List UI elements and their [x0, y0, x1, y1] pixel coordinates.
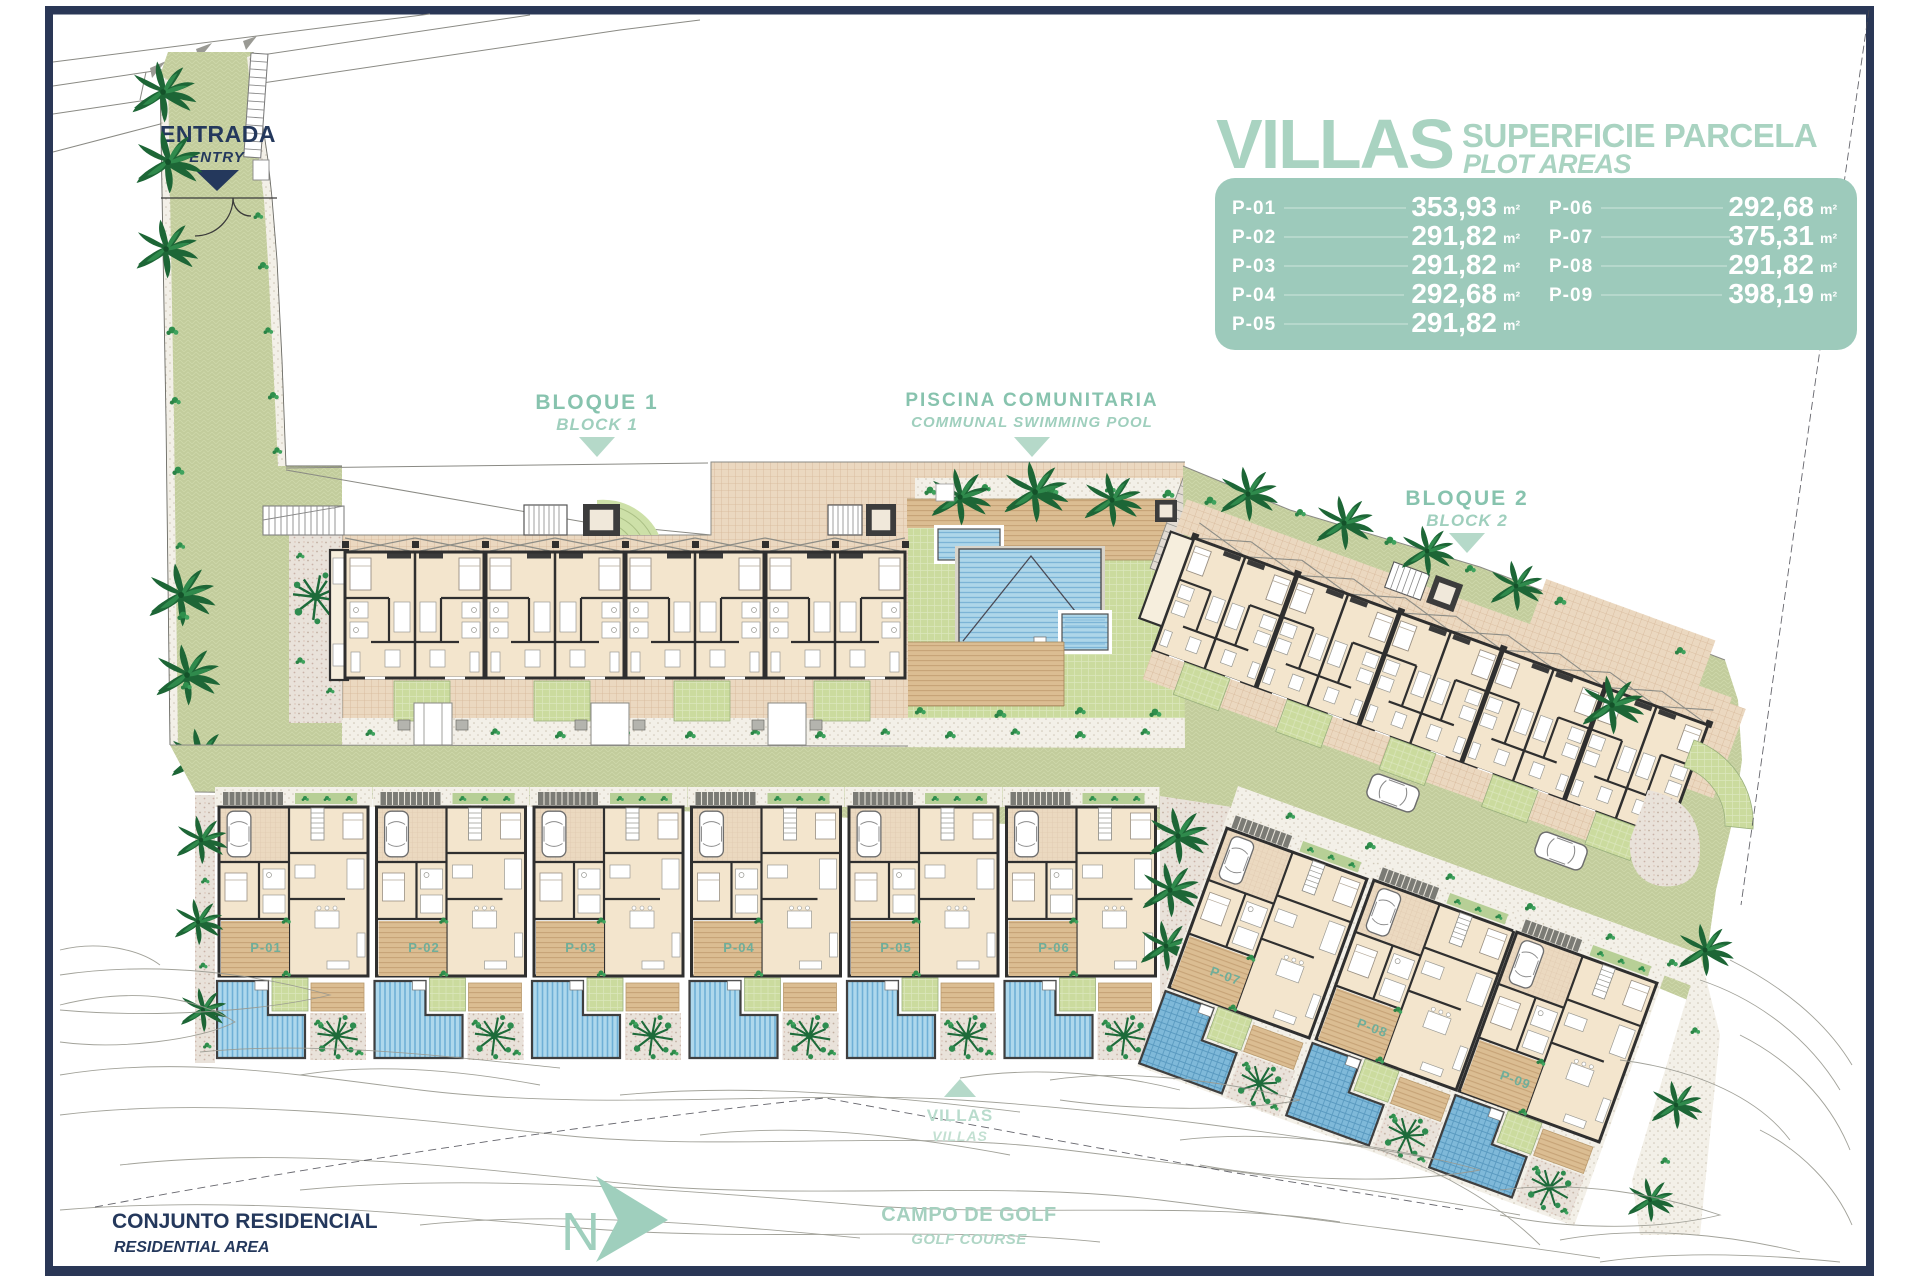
- svg-text:P-06: P-06: [1038, 940, 1069, 955]
- svg-text:BLOQUE 1: BLOQUE 1: [535, 391, 658, 414]
- svg-text:ENTRY: ENTRY: [189, 149, 246, 166]
- svg-text:N: N: [561, 1202, 600, 1262]
- svg-text:BLOQUE 2: BLOQUE 2: [1405, 487, 1528, 510]
- svg-text:m²: m²: [1820, 259, 1837, 275]
- svg-text:P-07: P-07: [1549, 227, 1593, 248]
- svg-text:VILLAS: VILLAS: [927, 1106, 993, 1125]
- svg-text:P-03: P-03: [1232, 256, 1276, 277]
- svg-text:398,19: 398,19: [1728, 278, 1814, 309]
- svg-text:BLOCK 1: BLOCK 1: [556, 415, 638, 434]
- svg-text:m²: m²: [1820, 288, 1837, 304]
- svg-text:375,31: 375,31: [1728, 220, 1814, 251]
- svg-text:m²: m²: [1503, 201, 1520, 217]
- svg-text:m²: m²: [1503, 317, 1520, 333]
- svg-text:P-09: P-09: [1549, 285, 1593, 306]
- svg-text:P-04: P-04: [723, 940, 754, 955]
- svg-text:ENTRADA: ENTRADA: [160, 121, 276, 147]
- svg-text:P-03: P-03: [565, 940, 596, 955]
- svg-text:291,82: 291,82: [1728, 249, 1814, 280]
- svg-text:CONJUNTO RESIDENCIAL: CONJUNTO RESIDENCIAL: [112, 1210, 378, 1233]
- svg-text:PISCINA COMUNITARIA: PISCINA COMUNITARIA: [905, 390, 1158, 411]
- svg-text:VILLAS: VILLAS: [1216, 105, 1453, 183]
- svg-text:CAMPO DE GOLF: CAMPO DE GOLF: [881, 1204, 1056, 1226]
- svg-text:291,82: 291,82: [1411, 249, 1497, 280]
- svg-text:m²: m²: [1503, 259, 1520, 275]
- svg-text:P-01: P-01: [250, 940, 281, 955]
- svg-text:P-01: P-01: [1232, 198, 1276, 219]
- svg-text:P-02: P-02: [1232, 227, 1276, 248]
- svg-text:291,82: 291,82: [1411, 307, 1497, 338]
- svg-text:353,93: 353,93: [1411, 191, 1497, 222]
- svg-text:P-04: P-04: [1232, 285, 1276, 306]
- svg-text:GOLF COURSE: GOLF COURSE: [911, 1231, 1027, 1248]
- svg-text:P-05: P-05: [1232, 314, 1276, 335]
- svg-text:PLOT AREAS: PLOT AREAS: [1463, 149, 1631, 179]
- svg-text:VILLAS: VILLAS: [932, 1128, 988, 1144]
- svg-text:P-05: P-05: [880, 940, 911, 955]
- svg-text:292,68: 292,68: [1728, 191, 1814, 222]
- svg-text:m²: m²: [1820, 230, 1837, 246]
- svg-text:COMMUNAL SWIMMING POOL: COMMUNAL SWIMMING POOL: [911, 414, 1153, 431]
- svg-text:291,82: 291,82: [1411, 220, 1497, 251]
- svg-text:BLOCK 2: BLOCK 2: [1426, 511, 1508, 530]
- svg-text:m²: m²: [1503, 288, 1520, 304]
- svg-text:292,68: 292,68: [1411, 278, 1497, 309]
- svg-text:P-08: P-08: [1549, 256, 1593, 277]
- svg-text:m²: m²: [1820, 201, 1837, 217]
- svg-text:P-06: P-06: [1549, 198, 1593, 219]
- svg-text:m²: m²: [1503, 230, 1520, 246]
- svg-text:P-02: P-02: [408, 940, 439, 955]
- svg-text:RESIDENTIAL AREA: RESIDENTIAL AREA: [114, 1239, 270, 1256]
